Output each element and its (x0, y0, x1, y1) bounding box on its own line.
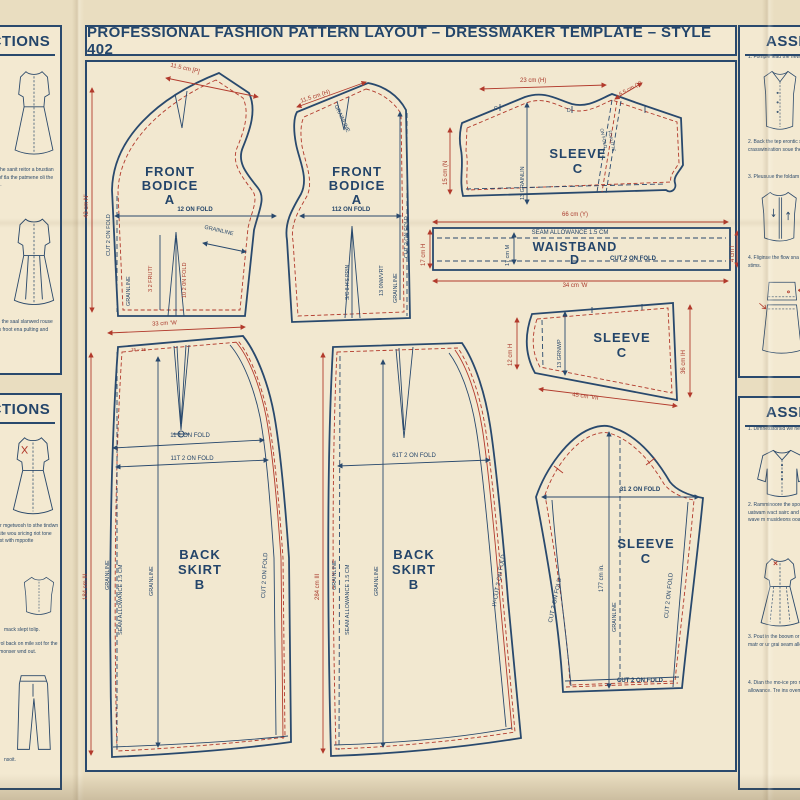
grainline-label: 13 GRAINLIN (520, 166, 526, 200)
dress-icon (752, 556, 800, 628)
seam-allowance-label: SEAM ALLOWANCE 1.5 CM (345, 565, 351, 635)
notch-label: C (494, 106, 498, 112)
fold-label: 61T 2 ON FOLD (369, 453, 459, 459)
fold-label: 12 ON FOLD (150, 207, 240, 213)
panel-header: ASSEMBLY (745, 398, 800, 427)
piece-title: BACK (155, 547, 245, 562)
piece-title: FRONT (125, 164, 215, 179)
dim-label: 23 cm (H) (520, 78, 546, 84)
skirt-assembly-icon (756, 279, 800, 355)
instruction-paragraph: soe oikter mgetwosh to sthe tindwn nom m… (0, 523, 60, 546)
piece-letter: A (125, 192, 215, 207)
piece-title: BODICE (312, 178, 402, 193)
piece-title: FRONT (312, 164, 402, 179)
piece-letter: C (577, 345, 667, 360)
grainline-label: GRAINLINE (149, 566, 155, 596)
assembly-step: 4. Fliginse the flow sna fom and waittia… (748, 255, 800, 270)
grainline-label: GRAINLINE (126, 276, 132, 306)
instruction-paragraph: sanes, orol back on mile sot for the sli… (0, 641, 60, 656)
dim-label: 284 cm III (315, 574, 321, 600)
dim-label: 43 cm N' (84, 195, 90, 218)
piece-letter: C (533, 161, 623, 176)
instructions-panel-bottom: INSTRUCTIONS soe oikter mgetwosh to sthe… (0, 393, 62, 790)
instruction-paragraph: sa 2 time the saal slanwed rouse that lm… (0, 319, 60, 342)
caption: nsoit. (4, 757, 16, 763)
fold-label: 11T 2 ON FOLD (147, 456, 237, 462)
annotation: 13 0NWVRT (379, 265, 385, 296)
piece-letter: D (530, 253, 620, 267)
panel-header: INSTRUCTIONS (0, 395, 55, 424)
dim-label: 34 cm 'W (530, 283, 620, 289)
grainline-label: GRAINLINE (105, 560, 111, 590)
annotation: 3 2 FRUTI' (148, 266, 154, 292)
piece-letter: B (155, 577, 245, 592)
assembly-panel-bottom: ASSEMBLY 1. Dimnesstorsid we nec lvetise… (738, 396, 800, 790)
dim-label: 66 cm (Y) (530, 212, 620, 218)
piece-letter: B (369, 577, 459, 592)
dress-icon (6, 213, 62, 313)
assembly-step: 1. Fomple lead the new waigobi paytens. (748, 54, 800, 62)
assembly-step: 4. Dian the mo-ice pro mosten to the sea… (748, 680, 800, 695)
fold-label: 31 2 ON FOLD (595, 487, 685, 493)
dim-label: 17 cm M (505, 245, 511, 266)
piece-title: BODICE (125, 178, 215, 193)
notch-label: D (567, 108, 571, 114)
piece-title: SLEEVE (577, 330, 667, 345)
grainline-label: GRAINLINE (612, 602, 618, 632)
dim-label: 36 cm IH (681, 350, 687, 374)
dim-label: 17 cm H (421, 244, 427, 266)
fold-label: 11 1 ON FOLD (145, 433, 235, 439)
fold-label: 112 ON FOLD (306, 207, 396, 213)
panel-header: ASSEMBLY (745, 27, 800, 56)
annotation: 10 2 0N FOLD (182, 263, 188, 298)
annotation: 15 – 15 (131, 347, 146, 352)
piece-title: SKIRT (155, 562, 245, 577)
annotation: S/C 8 H'S PRIN (345, 265, 351, 300)
instructions-panel-top: INSTRUCTIONS se gloin the sanit reitor a… (0, 25, 62, 375)
dim-label: 12 cm H (508, 344, 514, 366)
piece-title: SLEEVE (533, 146, 623, 161)
cut-label: CUT 2 ON FOLD (404, 216, 410, 258)
grainline-label: GRAINLINE (332, 560, 338, 590)
seam-allowance-label: SEAM ALLOWANCE 1.5 CM (118, 565, 124, 635)
dim-label: 184 cm III (83, 574, 89, 600)
pattern-sheet: { "title": "PROFESSIONAL FASHION PATTERN… (0, 0, 800, 800)
dim-label: 4 cm l (730, 246, 736, 262)
assembly-step: 2. Ramminoore the spo hueben motlwovin i… (748, 502, 800, 525)
piece-letter: C (601, 551, 691, 566)
vest-icon (756, 69, 800, 131)
grainline-label: GRAINLINE (374, 566, 380, 596)
caption: mack slept tolip. (4, 627, 40, 633)
trousers-icon (10, 673, 56, 753)
assembly-step: 2. Back the tep erontic sters and endy t… (748, 139, 800, 154)
piece-title: WAISTBAND (530, 240, 620, 254)
piece-title: SKIRT (369, 562, 459, 577)
grainline-label: GRAINLINE (393, 273, 399, 303)
dress-icon (7, 67, 61, 161)
vest-icon (754, 189, 800, 243)
seam-allowance-label: SEAM ALLOWANCE 1.5 CM (500, 230, 640, 236)
panel-header: INSTRUCTIONS (0, 27, 55, 56)
piece-title: SLEEVE (601, 536, 691, 551)
shirt-icon (754, 446, 800, 500)
assembly-step: 3. Pout in the boown or oeof on foeurool… (748, 634, 800, 649)
assembly-step: 1. Dimnesstorsid we nec lvetisehis pante… (748, 426, 800, 434)
dim-label: 15 cm (N (443, 161, 449, 185)
cut-label: CUT 2 ON FOLD (595, 678, 685, 684)
dress-icon (5, 435, 61, 517)
assembly-panel-top: ASSEMBLY 1. Fomple lead the new waigobi … (738, 25, 800, 378)
assembly-step: 3. Pleusuue the foldam repesess roan wit… (748, 174, 800, 182)
grainline-label: 13 GRNWP (557, 339, 563, 368)
dim-label: 177 cm in. (599, 564, 605, 592)
cut-label: CUT 2 ON FOLD (106, 214, 112, 256)
instruction-paragraph: se gloin the sanit reitor a brustian pos… (0, 167, 60, 190)
cut-label: CUT 2 ON FOLD (610, 256, 656, 262)
piece-title: BACK (369, 547, 459, 562)
vest-icon (17, 575, 61, 617)
piece-letter: A (312, 192, 402, 207)
